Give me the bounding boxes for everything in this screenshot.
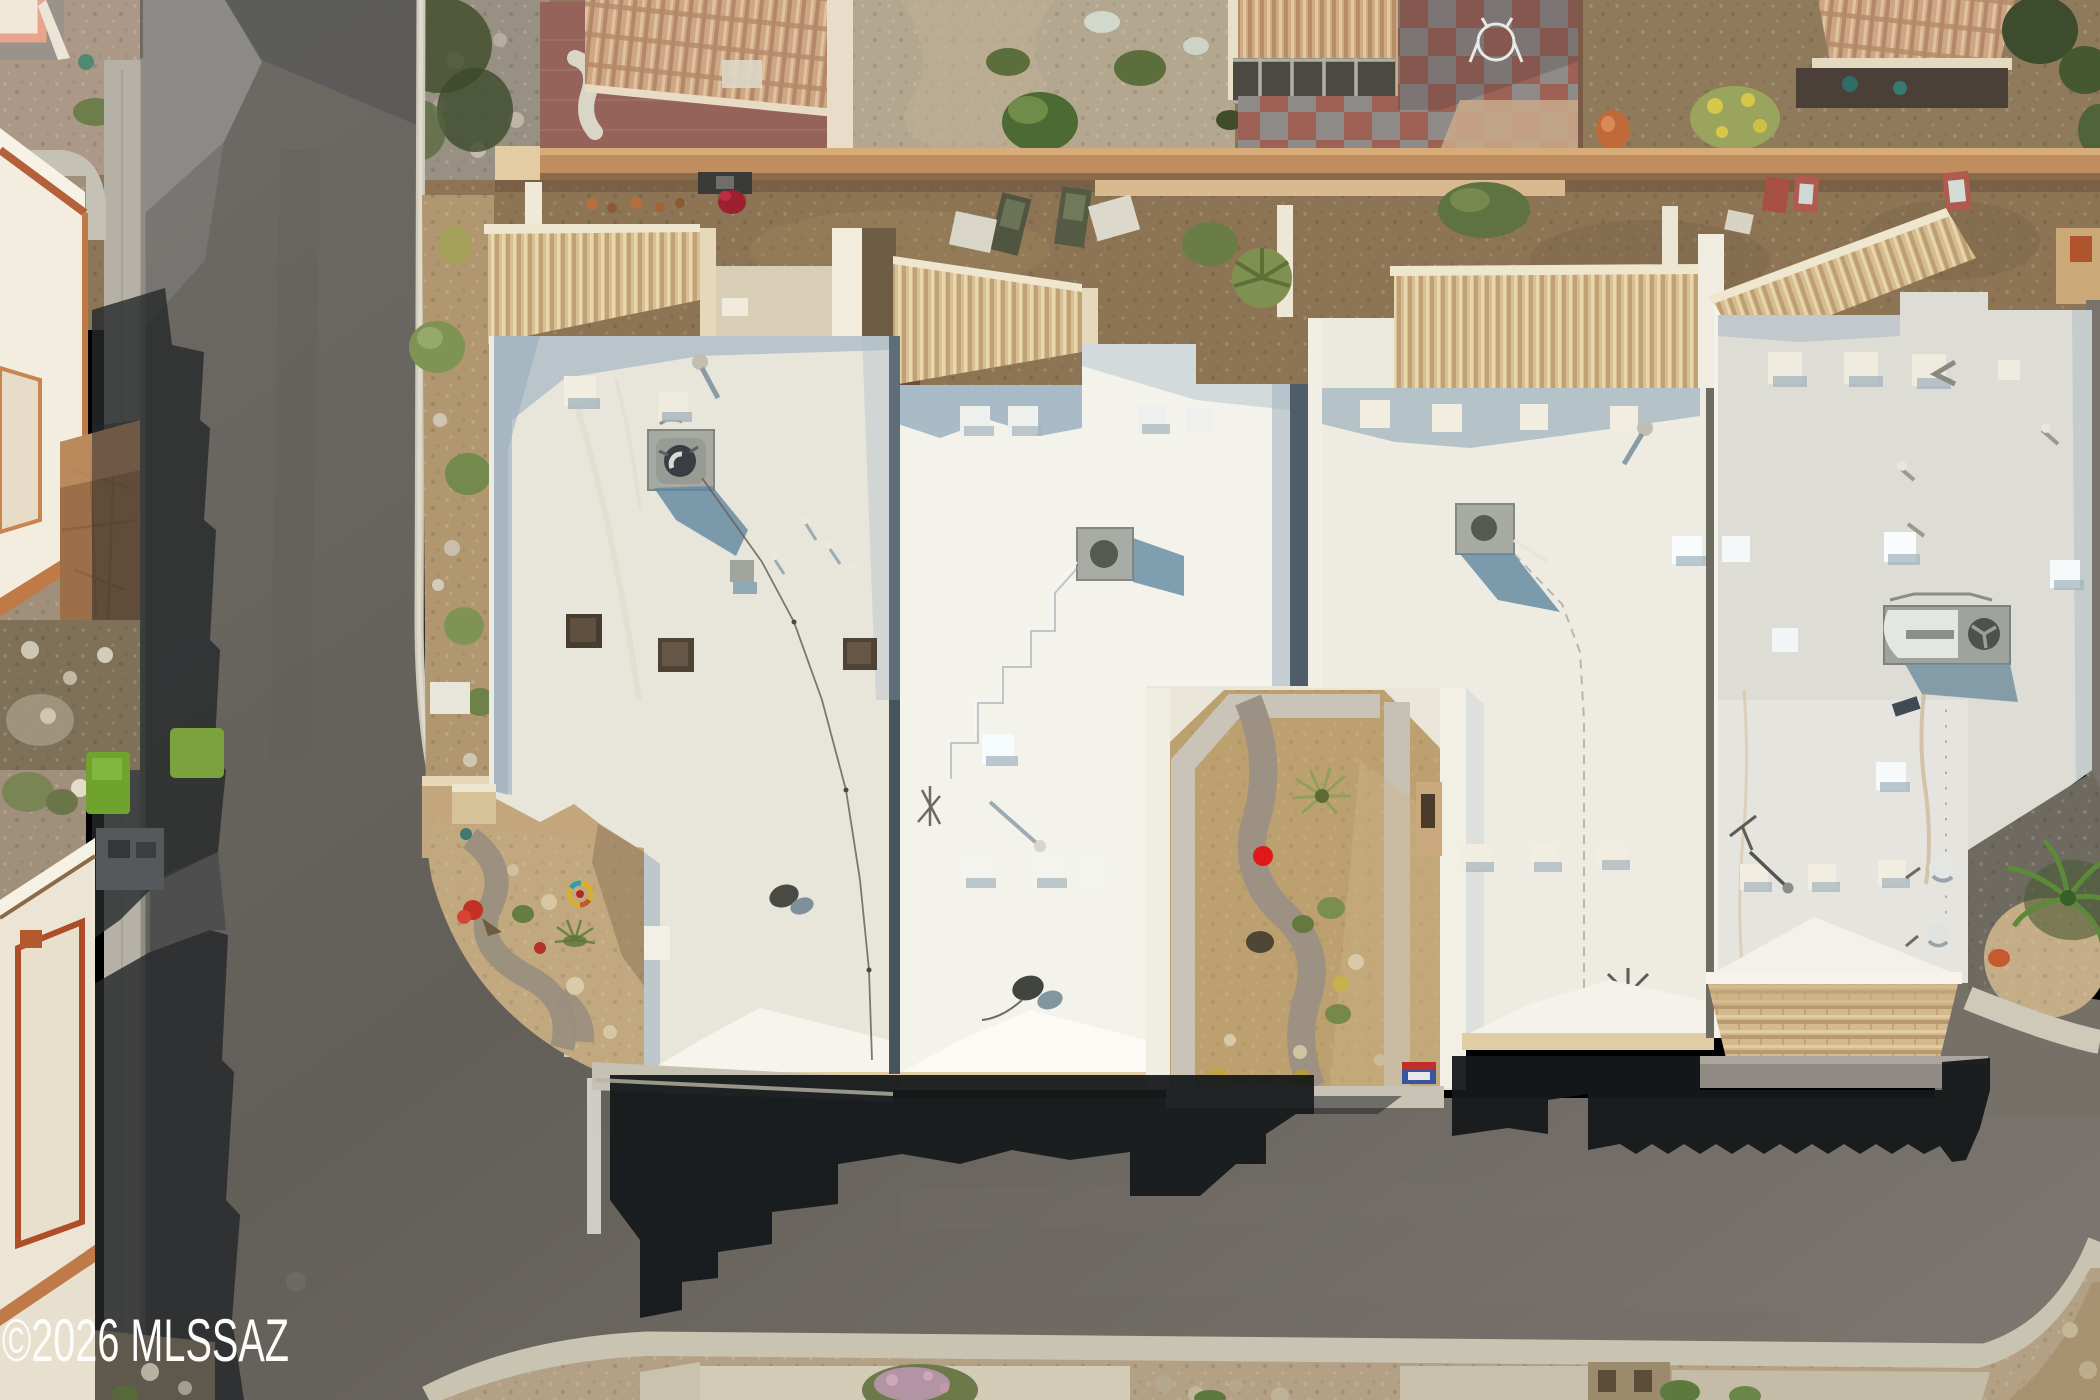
svg-text:©2026 MLSSAZ: ©2026 MLSSAZ — [2, 1307, 289, 1374]
